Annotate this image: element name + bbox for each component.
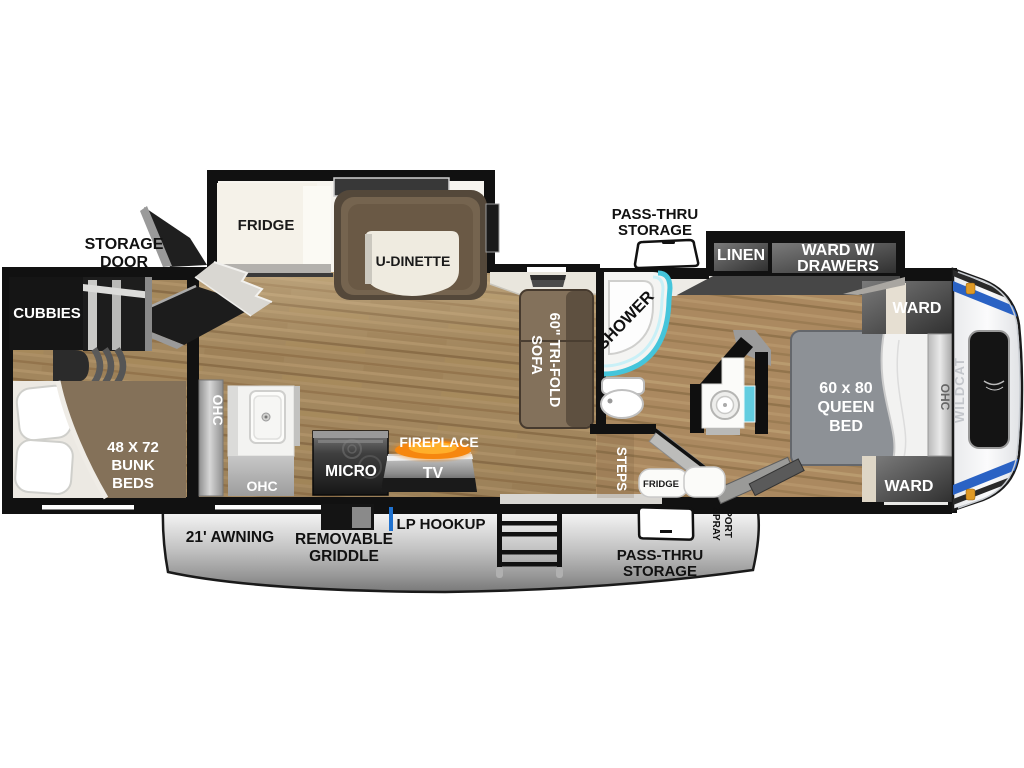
svg-text:CUBBIES: CUBBIES	[13, 305, 81, 322]
svg-text:PORT: PORT	[722, 510, 733, 538]
svg-text:21' AWNING: 21' AWNING	[186, 529, 274, 546]
svg-text:FIREPLACE: FIREPLACE	[399, 434, 478, 450]
svg-text:SPRAY: SPRAY	[710, 507, 721, 541]
svg-text:60 x 80: 60 x 80	[819, 380, 872, 397]
svg-text:WILDCAT: WILDCAT	[952, 357, 967, 423]
svg-text:PASS-THRU: PASS-THRU	[617, 547, 703, 564]
svg-text:DOOR: DOOR	[100, 254, 148, 271]
svg-text:OHC: OHC	[210, 394, 226, 425]
svg-text:OHC: OHC	[938, 384, 952, 411]
svg-text:GRIDDLE: GRIDDLE	[309, 548, 379, 565]
svg-text:BEDS: BEDS	[112, 475, 154, 492]
svg-text:OHC: OHC	[246, 478, 277, 494]
svg-text:LINEN: LINEN	[717, 247, 765, 264]
svg-text:FRIDGE: FRIDGE	[238, 217, 295, 234]
svg-text:WARD: WARD	[893, 300, 942, 317]
svg-text:LP HOOKUP: LP HOOKUP	[397, 516, 486, 533]
svg-text:WARD W/: WARD W/	[802, 242, 875, 259]
svg-text:REMOVABLE: REMOVABLE	[295, 531, 393, 548]
svg-text:STORAGE: STORAGE	[618, 222, 692, 239]
svg-text:BED: BED	[829, 418, 863, 435]
svg-text:60" TRI-FOLD: 60" TRI-FOLD	[546, 313, 562, 408]
svg-text:DRAWERS: DRAWERS	[797, 258, 879, 275]
svg-text:PASS-THRU: PASS-THRU	[612, 206, 698, 223]
svg-text:FRIDGE: FRIDGE	[643, 479, 679, 490]
svg-text:MICRO: MICRO	[325, 463, 377, 480]
svg-text:BUNK: BUNK	[111, 457, 154, 474]
svg-text:STEPS: STEPS	[614, 447, 629, 491]
svg-text:TV: TV	[423, 465, 444, 482]
svg-text:QUEEN: QUEEN	[818, 399, 875, 416]
svg-text:STORAGE: STORAGE	[85, 236, 164, 253]
svg-text:STORAGE: STORAGE	[623, 563, 697, 580]
svg-text:U-DINETTE: U-DINETTE	[376, 253, 451, 269]
svg-text:48 X 72: 48 X 72	[107, 439, 159, 456]
svg-text:WARD: WARD	[885, 478, 934, 495]
svg-text:SOFA: SOFA	[528, 335, 544, 375]
